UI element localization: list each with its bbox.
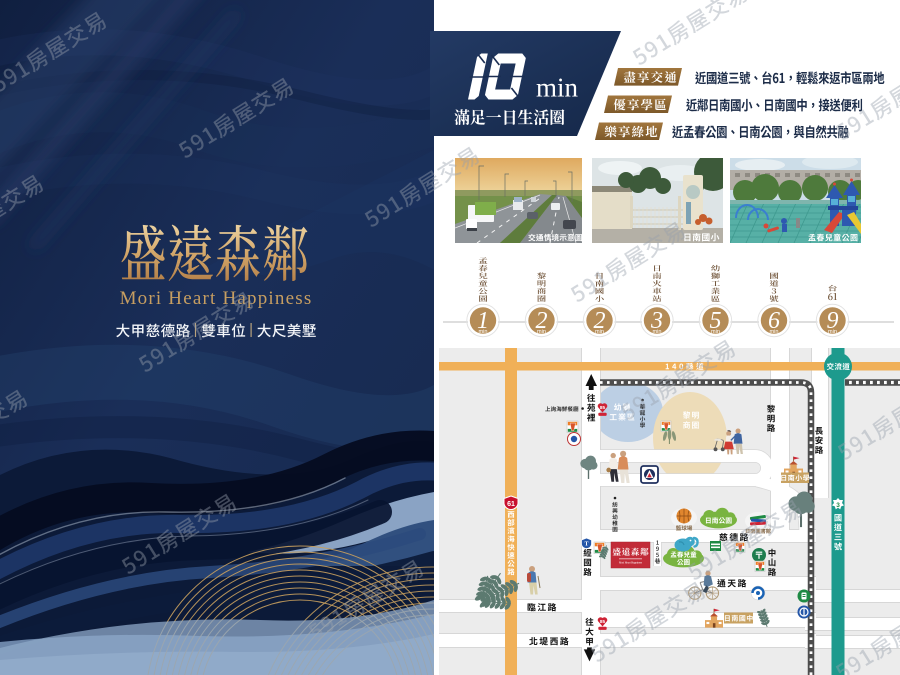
svg-text:61: 61 <box>507 501 515 508</box>
svg-text:85: 85 <box>600 619 606 624</box>
svg-text:min: min <box>769 329 778 335</box>
svg-text:min: min <box>478 329 487 335</box>
svg-text:min: min <box>537 329 546 335</box>
svg-text:〒: 〒 <box>754 551 763 561</box>
svg-text:min: min <box>595 329 604 335</box>
svg-text:min: min <box>652 329 661 335</box>
svg-text:T: T <box>584 542 588 548</box>
svg-text:min: min <box>536 73 579 103</box>
svg-text:min: min <box>828 329 837 335</box>
svg-text:3: 3 <box>836 502 840 509</box>
svg-text:min: min <box>711 329 720 335</box>
svg-text:85: 85 <box>600 405 606 410</box>
svg-text:Mori Heart Happiness: Mori Heart Happiness <box>619 562 642 565</box>
svg-text:Mori Heart Happiness: Mori Heart Happiness <box>120 288 313 309</box>
